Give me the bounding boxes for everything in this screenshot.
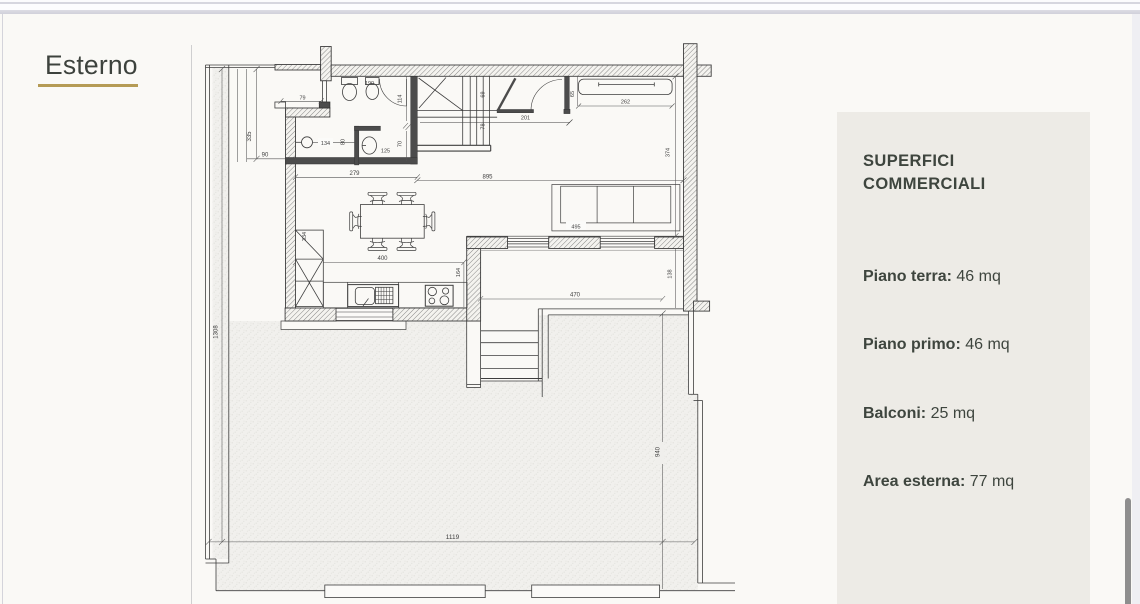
svg-text:78: 78: [481, 123, 487, 129]
svg-text:190: 190: [365, 81, 374, 87]
svg-text:400: 400: [377, 256, 388, 262]
svg-text:495: 495: [571, 224, 580, 230]
svg-text:335: 335: [247, 131, 253, 142]
svg-text:262: 262: [621, 100, 630, 106]
svg-text:201: 201: [521, 116, 530, 122]
svg-text:80: 80: [341, 139, 347, 145]
svg-text:334: 334: [302, 232, 308, 241]
svg-text:1308: 1308: [214, 325, 220, 339]
svg-text:279: 279: [349, 171, 360, 177]
svg-text:79: 79: [299, 96, 305, 102]
svg-text:164: 164: [456, 268, 462, 277]
svg-text:65: 65: [570, 91, 576, 97]
svg-text:1119: 1119: [446, 534, 460, 541]
svg-text:70: 70: [398, 141, 404, 147]
svg-text:125: 125: [381, 149, 390, 155]
svg-text:134: 134: [321, 141, 330, 147]
svg-text:940: 940: [656, 446, 662, 457]
svg-text:69: 69: [481, 91, 487, 97]
svg-text:114: 114: [398, 95, 404, 104]
svg-text:138: 138: [668, 269, 674, 278]
svg-text:470: 470: [570, 293, 581, 299]
svg-text:90: 90: [262, 153, 269, 159]
svg-text:374: 374: [666, 148, 672, 157]
svg-text:895: 895: [482, 174, 493, 180]
